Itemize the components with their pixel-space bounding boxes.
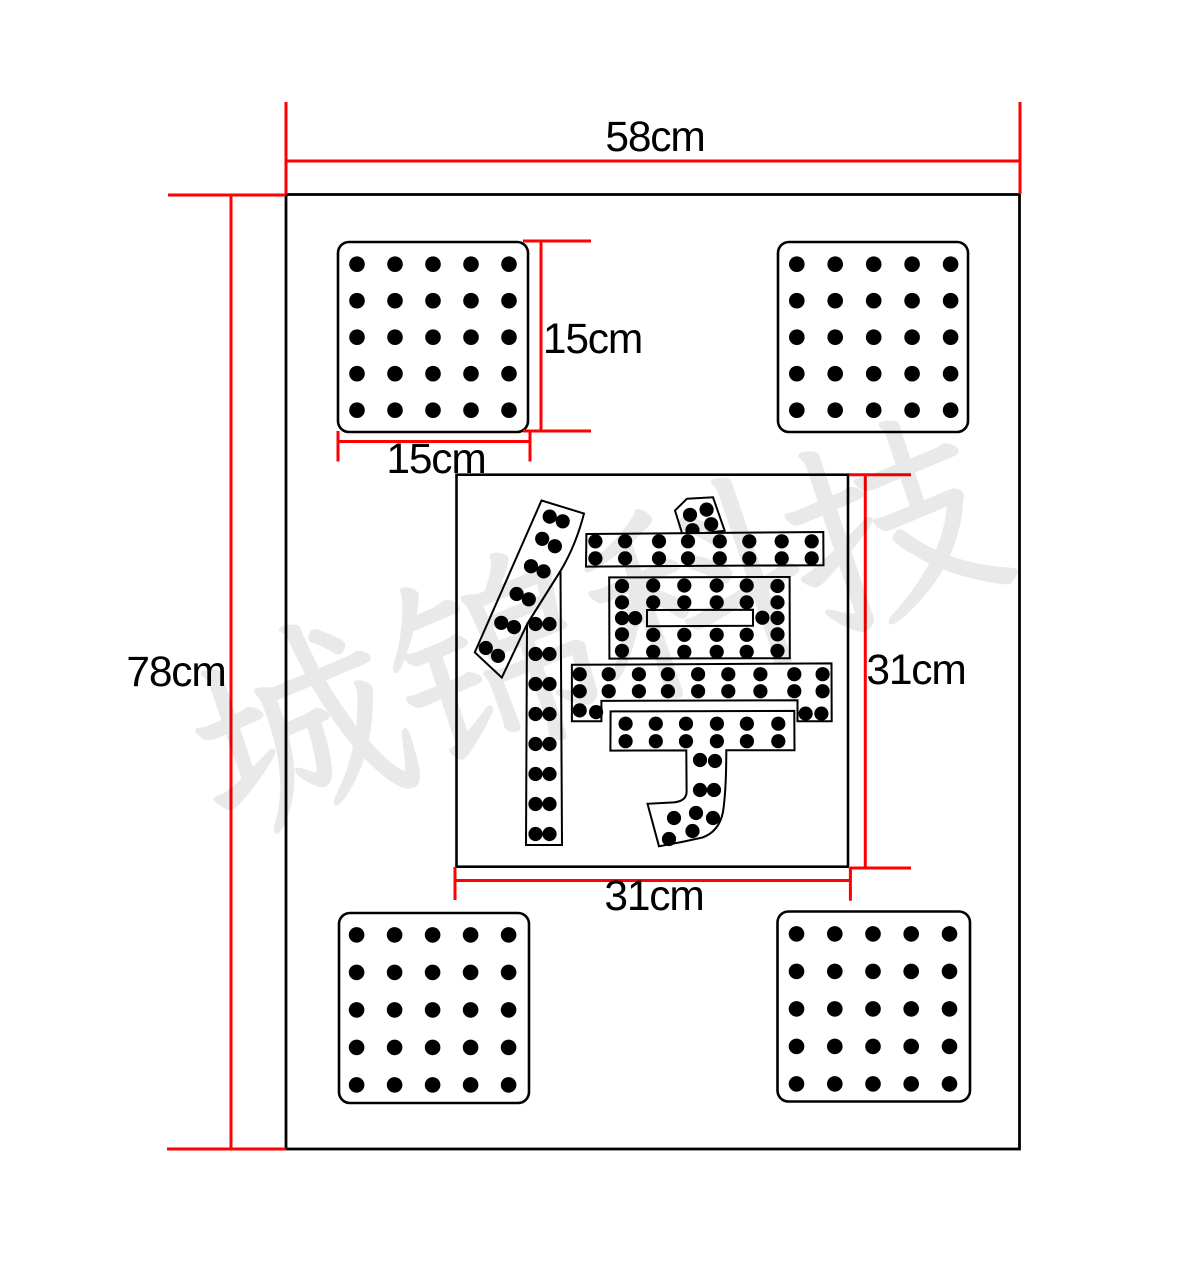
svg-text:15cm: 15cm [386, 436, 485, 483]
svg-text:58cm: 58cm [605, 114, 704, 161]
svg-text:31cm: 31cm [866, 647, 965, 694]
svg-text:31cm: 31cm [604, 873, 703, 920]
svg-text:15cm: 15cm [543, 316, 642, 363]
